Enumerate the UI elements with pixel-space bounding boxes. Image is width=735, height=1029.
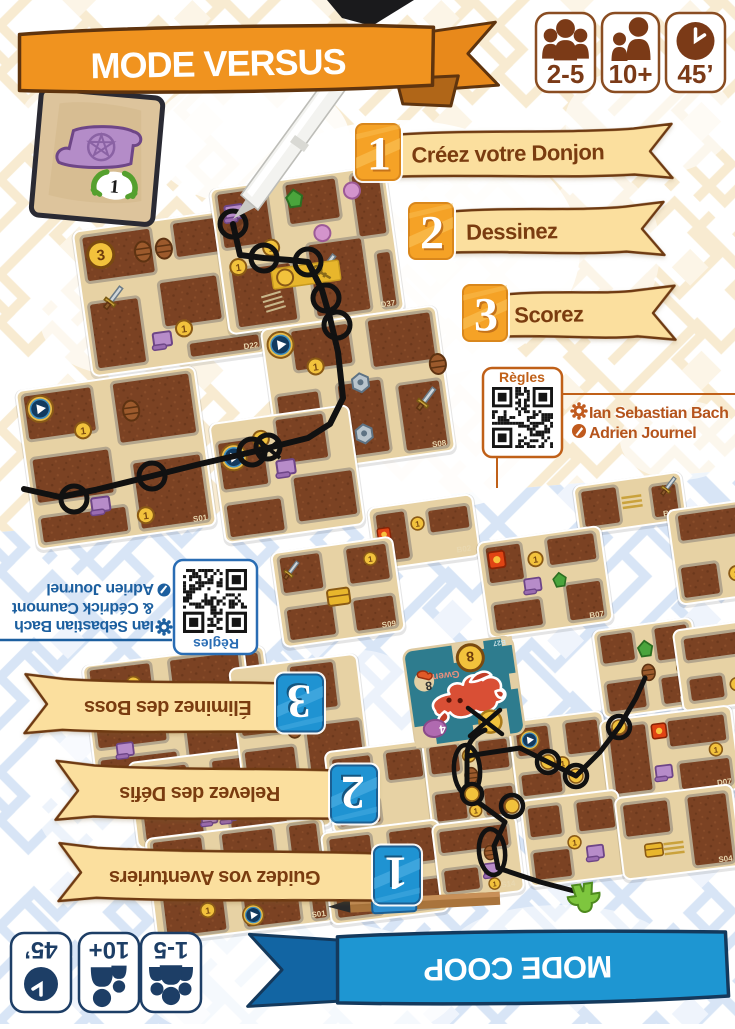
svg-text:2-5: 2-5 — [547, 59, 585, 89]
svg-text:10+: 10+ — [89, 936, 130, 963]
svg-text:45’: 45’ — [24, 936, 57, 963]
svg-text:45’: 45’ — [677, 59, 713, 89]
svg-text:10+: 10+ — [608, 59, 652, 89]
svg-text:1-5: 1-5 — [154, 936, 189, 963]
